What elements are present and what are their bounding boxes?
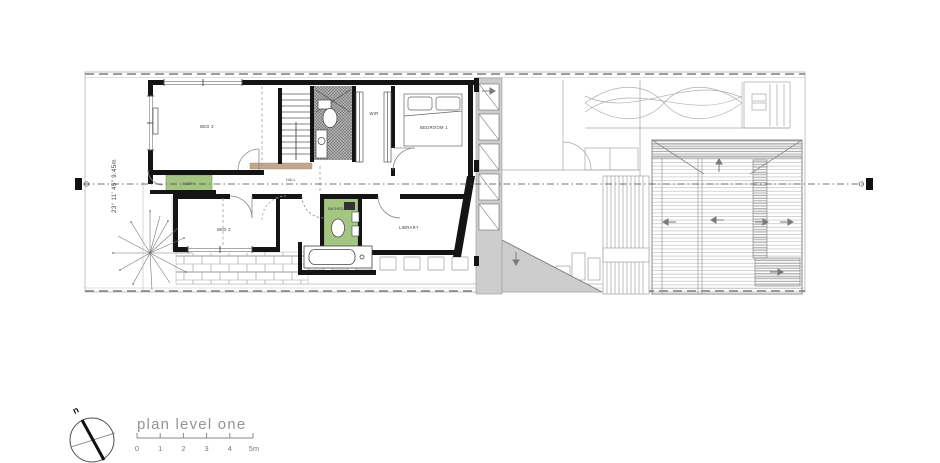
plan-title: plan level one [137, 416, 246, 433]
wir-robes [356, 92, 391, 162]
scale-tick-2: 2 [181, 444, 185, 453]
north-label: n [71, 405, 80, 416]
scale-tick-1: 1 [158, 444, 162, 453]
windows [147, 79, 252, 253]
label-entry: ENTRY [183, 182, 196, 186]
label-wir: WIR [369, 111, 378, 116]
north-compass: n [70, 405, 115, 462]
label-bathroom: BATHROOM [328, 207, 350, 211]
scale-bar: 0 1 2 3 4 5m [135, 433, 259, 453]
box-gutter [753, 160, 767, 258]
bed-bedroom1 [404, 94, 462, 146]
label-bedroom1: BEDROOM 1 [420, 125, 448, 130]
label-bed3: BED 3 [200, 124, 214, 129]
bed3-joinery [153, 108, 158, 134]
floor-plan-sheet: 23° 11' 45" 9.45m BED 3 ENTRY HALL WIR B… [0, 0, 940, 463]
scale-tick-3: 3 [205, 444, 209, 453]
external-stair [603, 176, 649, 294]
curved-roof-lines [585, 82, 742, 128]
floor-plan-drawing: 23° 11' 45" 9.45m BED 3 ENTRY HALL WIR B… [0, 0, 940, 463]
roof-deck [652, 140, 802, 294]
scale-tick-0: 0 [135, 444, 139, 453]
building-level-one [147, 79, 478, 275]
title-block: n plan level one 0 1 2 3 4 5m [70, 405, 259, 462]
label-hall: HALL [286, 178, 296, 182]
brick-paving-strip [176, 252, 308, 284]
scale-tick-4: 4 [228, 444, 232, 453]
label-bed2: BED 2 [217, 227, 231, 232]
label-library: LIBRARY [399, 225, 419, 230]
ghost-room-top-right [744, 82, 790, 128]
internal-stair [282, 94, 310, 160]
boundary-dimension: 23° 11' 45" 9.45m [112, 159, 118, 213]
bath-tub [304, 246, 372, 268]
scale-tick-5m: 5m [249, 444, 259, 453]
